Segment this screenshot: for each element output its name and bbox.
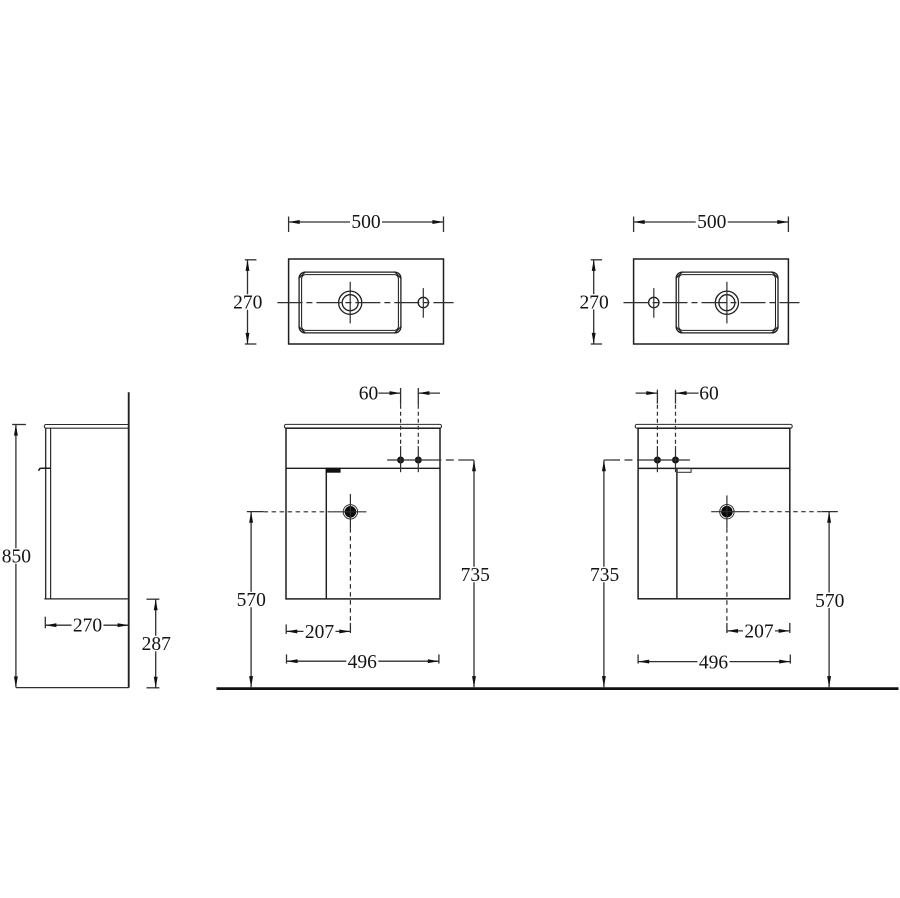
svg-text:60: 60 [699, 384, 719, 405]
svg-text:207: 207 [744, 621, 774, 642]
svg-text:500: 500 [697, 212, 726, 233]
svg-text:500: 500 [351, 212, 380, 233]
svg-text:496: 496 [348, 652, 378, 673]
svg-text:270: 270 [233, 293, 262, 314]
svg-text:270: 270 [73, 616, 102, 637]
svg-text:735: 735 [461, 565, 490, 586]
svg-text:570: 570 [815, 591, 844, 612]
svg-text:735: 735 [590, 565, 619, 586]
svg-text:270: 270 [579, 292, 608, 313]
svg-text:496: 496 [699, 652, 729, 673]
svg-text:570: 570 [237, 590, 266, 611]
svg-text:207: 207 [305, 622, 335, 643]
svg-text:60: 60 [359, 384, 379, 405]
svg-text:287: 287 [142, 634, 172, 655]
svg-text:850: 850 [2, 547, 31, 568]
